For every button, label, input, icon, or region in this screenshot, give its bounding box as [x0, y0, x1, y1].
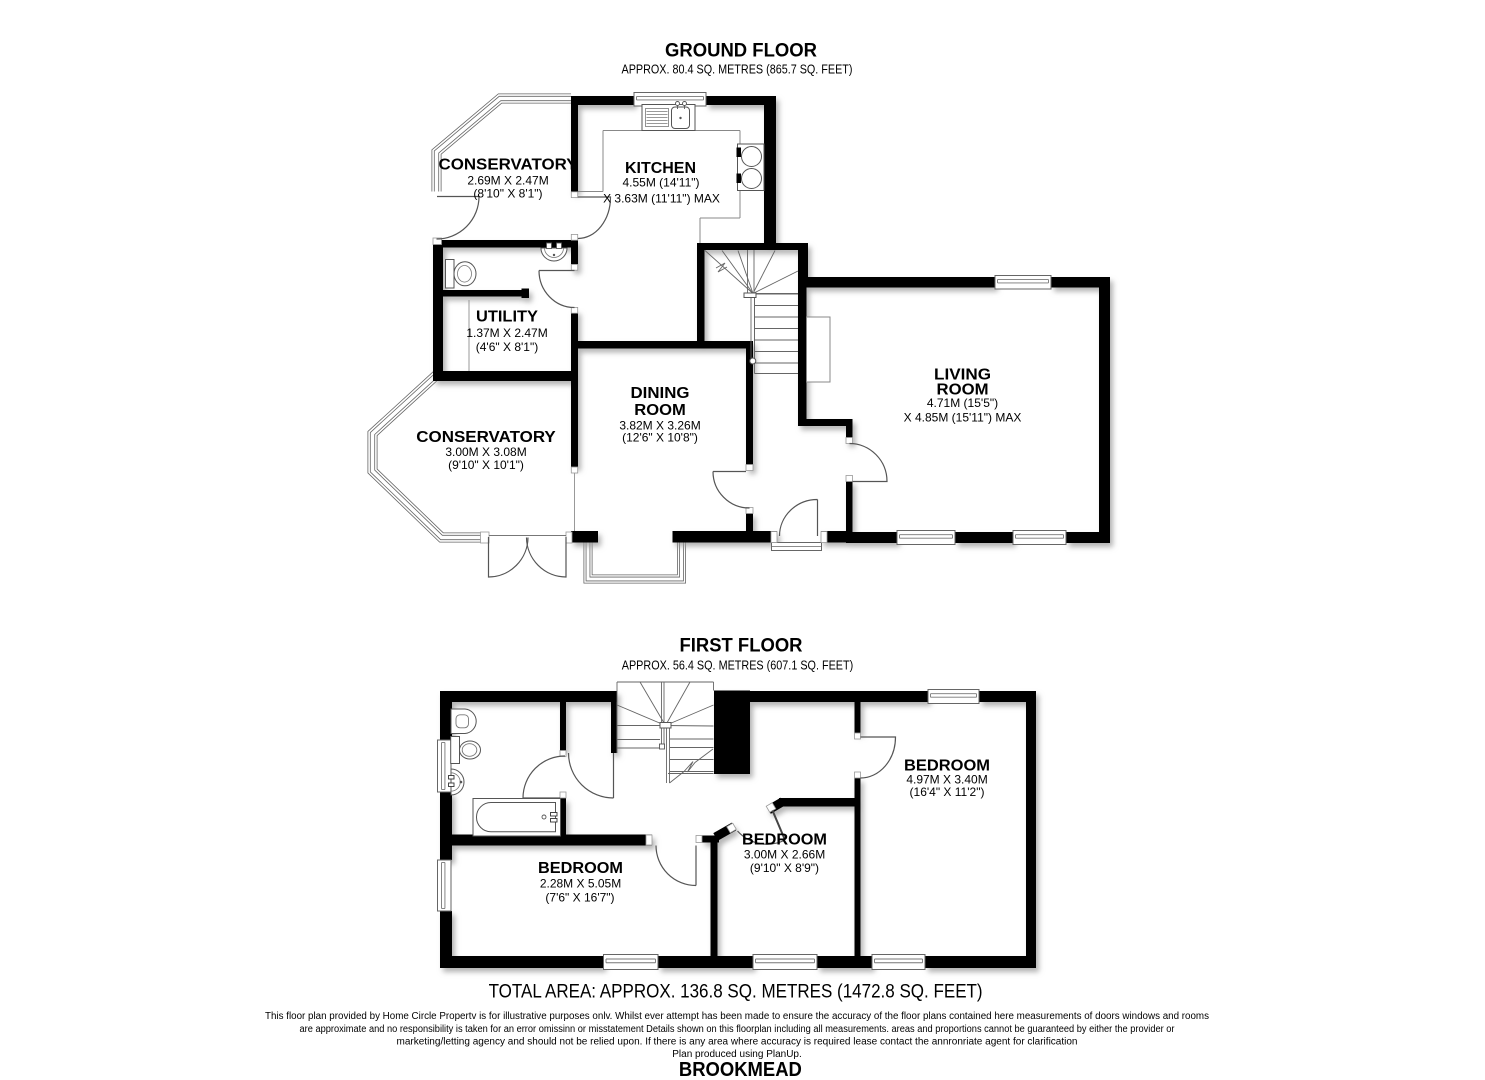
svg-text:GROUND FLOOR: GROUND FLOOR — [665, 41, 817, 62]
svg-text:(7'6" X 16'7"): (7'6" X 16'7") — [545, 891, 614, 905]
svg-text:1.37M X 2.47M: 1.37M X 2.47M — [466, 326, 547, 340]
svg-text:4.71M (15'5"): 4.71M (15'5") — [927, 396, 998, 410]
svg-text:(9'10" X 10'1"): (9'10" X 10'1") — [448, 458, 524, 472]
svg-text:2.69M X 2.47M: 2.69M X 2.47M — [467, 174, 548, 188]
svg-text:TOTAL AREA: APPROX. 136.8 SQ.: TOTAL AREA: APPROX. 136.8 SQ. METRES (14… — [489, 982, 983, 1003]
svg-text:3.00M X 3.08M: 3.00M X 3.08M — [445, 445, 526, 459]
svg-text:X 3.63M (11'11") MAX: X 3.63M (11'11") MAX — [603, 192, 720, 206]
svg-text:FIRST FLOOR: FIRST FLOOR — [680, 636, 803, 657]
svg-text:KITCHEN: KITCHEN — [625, 160, 696, 177]
svg-text:2.28M X 5.05M: 2.28M X 5.05M — [540, 877, 621, 891]
svg-text:3.00M X 2.66M: 3.00M X 2.66M — [744, 848, 825, 862]
svg-text:(4'6" X 8'1"): (4'6" X 8'1") — [476, 340, 538, 354]
svg-text:(9'10" X 8'9"): (9'10" X 8'9") — [750, 861, 819, 875]
svg-text:This floor plan provided by Ho: This floor plan provided by Home Circle … — [265, 1011, 1209, 1022]
svg-text:APPROX. 80.4 SQ. METRES (865.7: APPROX. 80.4 SQ. METRES (865.7 SQ. FEET) — [622, 61, 853, 76]
svg-text:BEDROOM: BEDROOM — [538, 860, 623, 877]
svg-text:(8'10" X 8'1"): (8'10" X 8'1") — [473, 187, 542, 201]
svg-text:are approximate and no respons: are approximate and no responsibility is… — [300, 1024, 1176, 1035]
svg-text:marketing/letting agency and s: marketing/letting agency and should not … — [397, 1037, 1078, 1048]
svg-text:APPROX. 56.4 SQ. METRES (607.1: APPROX. 56.4 SQ. METRES (607.1 SQ. FEET) — [622, 658, 854, 673]
svg-text:4.55M (14'11"): 4.55M (14'11") — [622, 176, 699, 190]
svg-text:CONSERVATORY: CONSERVATORY — [416, 429, 556, 446]
svg-text:BEDROOM: BEDROOM — [742, 832, 827, 849]
svg-text:(12'6" X 10'8"): (12'6" X 10'8") — [622, 431, 698, 445]
svg-text:BROOKMEAD: BROOKMEAD — [679, 1059, 802, 1080]
svg-text:ROOM: ROOM — [634, 402, 686, 419]
svg-text:(16'4" X 11'2"): (16'4" X 11'2") — [910, 785, 985, 799]
svg-text:CONSERVATORY: CONSERVATORY — [439, 157, 579, 174]
svg-text:X 4.85M (15'11") MAX: X 4.85M (15'11") MAX — [904, 411, 1022, 425]
svg-text:DINING: DINING — [631, 385, 690, 402]
svg-text:UTILITY: UTILITY — [476, 309, 539, 326]
